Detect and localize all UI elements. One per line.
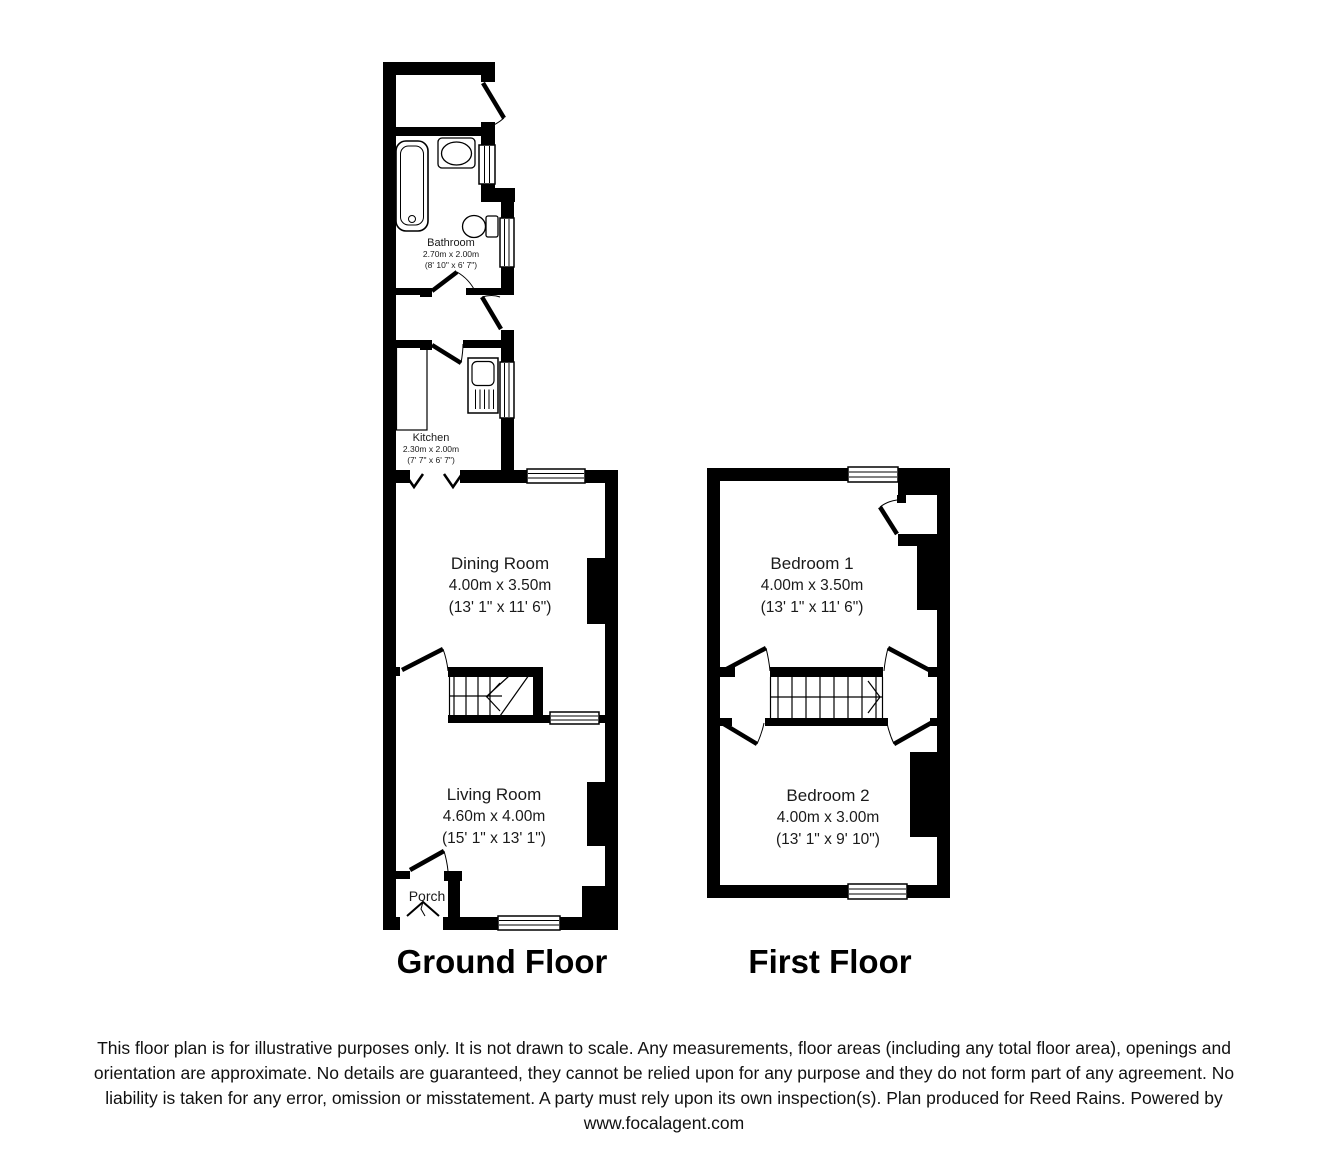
ground-floor-staircase <box>450 675 530 716</box>
room-name: Bedroom 2 <box>776 785 880 807</box>
kitchen-sink-icon <box>468 358 498 413</box>
sink-icon <box>438 138 475 168</box>
double-door <box>405 474 462 487</box>
door <box>884 648 931 671</box>
room-label-kitchen: Kitchen 2.30m x 2.00m (7' 7" x 6' 7") <box>403 432 459 466</box>
disclaimer-line: orientation are approximate. No details … <box>0 1061 1328 1086</box>
disclaimer-line: www.focalagent.com <box>0 1111 1328 1136</box>
room-label-porch: Porch <box>409 888 446 904</box>
room-name: Living Room <box>442 784 546 806</box>
first-floor-staircase <box>771 677 883 718</box>
window <box>498 916 560 930</box>
door <box>402 649 448 671</box>
disclaimer-text: This floor plan is for illustrative purp… <box>0 1036 1328 1136</box>
floor-plan-page: Bathroom 2.70m x 2.00m (8' 10" x 6' 7") … <box>0 0 1328 1151</box>
room-dims-imperial: (13' 1" x 11' 6") <box>449 597 552 619</box>
room-label-living-room: Living Room 4.60m x 4.00m (15' 1" x 13' … <box>442 784 546 850</box>
room-dims-imperial: (8' 10" x 6' 7") <box>423 260 479 271</box>
room-dims-imperial: (13' 1" x 9' 10") <box>776 829 880 851</box>
disclaimer-line: liability is taken for any error, omissi… <box>0 1086 1328 1111</box>
room-name: Kitchen <box>403 432 459 444</box>
door <box>482 296 501 330</box>
room-label-bedroom-1: Bedroom 1 4.00m x 3.50m (13' 1" x 11' 6"… <box>761 553 864 619</box>
door <box>432 344 463 363</box>
door <box>722 723 764 744</box>
room-dims-metric: 2.30m x 2.00m <box>403 444 459 455</box>
room-dims-imperial: (13' 1" x 11' 6") <box>761 597 864 619</box>
bathtub-icon <box>396 141 428 231</box>
room-dims-metric: 4.00m x 3.50m <box>761 575 864 597</box>
window <box>848 884 907 899</box>
room-dims-imperial: (15' 1" x 13' 1") <box>442 828 546 850</box>
room-label-bedroom-2: Bedroom 2 4.00m x 3.00m (13' 1" x 9' 10"… <box>776 785 880 851</box>
window <box>479 145 495 184</box>
window <box>848 467 898 482</box>
window <box>550 712 599 724</box>
door <box>410 851 448 871</box>
window <box>500 362 514 418</box>
door <box>880 500 897 534</box>
room-name: Bedroom 1 <box>761 553 864 575</box>
room-name: Bathroom <box>423 237 479 249</box>
window <box>500 218 514 267</box>
room-dims-metric: 2.70m x 2.00m <box>423 249 479 260</box>
window <box>527 469 585 483</box>
door <box>723 648 770 671</box>
room-label-bathroom: Bathroom 2.70m x 2.00m (8' 10" x 6' 7") <box>423 237 479 271</box>
first-floor-title: First Floor <box>748 943 911 981</box>
room-dims-metric: 4.00m x 3.50m <box>449 575 552 597</box>
kitchen-counter <box>397 345 428 430</box>
room-name: Dining Room <box>449 553 552 575</box>
room-name: Porch <box>409 888 446 904</box>
floor-plan-drawing <box>0 0 1328 1151</box>
room-dims-metric: 4.60m x 4.00m <box>442 806 546 828</box>
disclaimer-line: This floor plan is for illustrative purp… <box>0 1036 1328 1061</box>
room-dims-metric: 4.00m x 3.00m <box>776 807 880 829</box>
room-dims-imperial: (7' 7" x 6' 7") <box>403 455 459 466</box>
ground-floor-title: Ground Floor <box>397 943 608 981</box>
door <box>887 723 931 744</box>
stairs-direction-arrow <box>487 683 500 711</box>
room-label-dining-room: Dining Room 4.00m x 3.50m (13' 1" x 11' … <box>449 553 552 619</box>
toilet-icon <box>463 216 499 238</box>
front-door <box>407 902 439 916</box>
